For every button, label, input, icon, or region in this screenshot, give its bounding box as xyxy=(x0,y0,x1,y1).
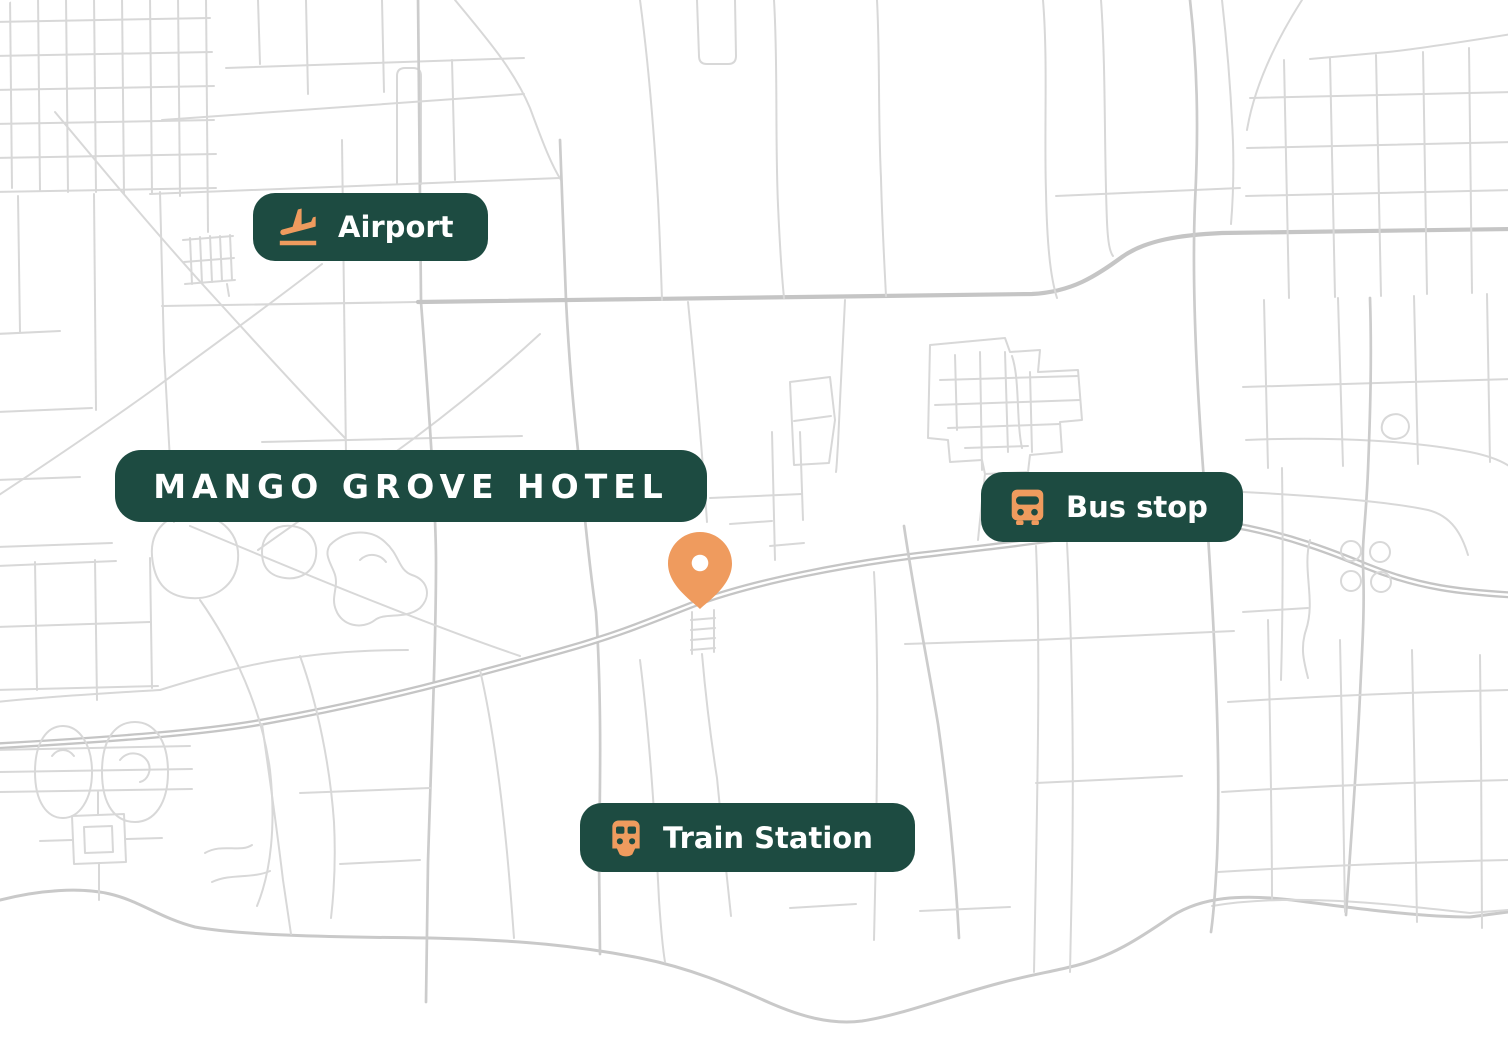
airport-marker[interactable]: Airport xyxy=(253,193,488,261)
bus-stop-marker-label: Bus stop xyxy=(1066,490,1208,524)
train-station-marker-label: Train Station xyxy=(663,821,873,855)
airport-marker-label: Airport xyxy=(338,210,454,244)
map-pin-icon xyxy=(668,532,732,609)
hotel-location-pin[interactable] xyxy=(668,532,732,609)
bus-stop-marker[interactable]: Bus stop xyxy=(981,472,1243,542)
train-station-marker[interactable]: Train Station xyxy=(580,803,915,872)
train-icon xyxy=(605,817,647,859)
streets-layer xyxy=(0,0,1508,1046)
plane-landing-icon xyxy=(275,204,321,250)
water-area xyxy=(0,890,1508,1046)
map: Airport MANGO GROVE HOTEL Bus stop Train… xyxy=(0,0,1508,1046)
hotel-name-text: MANGO GROVE HOTEL xyxy=(153,467,669,506)
hotel-name-label[interactable]: MANGO GROVE HOTEL xyxy=(115,450,707,522)
bus-icon xyxy=(1006,486,1049,529)
